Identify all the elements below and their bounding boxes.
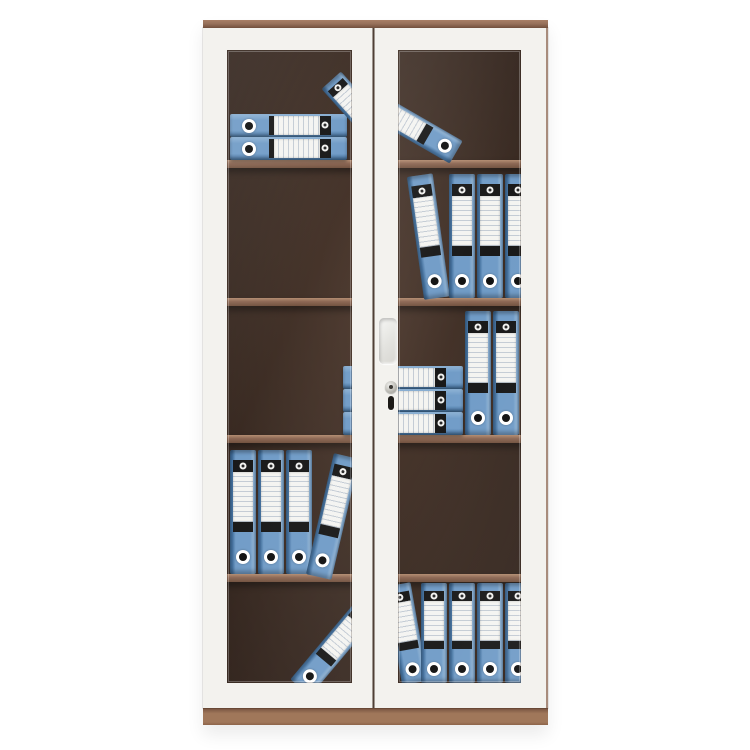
lock-cylinder — [385, 381, 397, 393]
window-frame-line-left — [227, 50, 352, 683]
cabinet-top-trim — [203, 20, 548, 28]
product-photo-stage — [0, 0, 750, 750]
keyhole-slot — [388, 396, 394, 410]
filing-cabinet — [203, 20, 548, 725]
glass-door-left — [203, 28, 373, 708]
cabinet-base-plinth — [203, 708, 548, 725]
door-handle — [379, 318, 397, 364]
cabinet-right-edge-shadow — [546, 28, 548, 708]
door-gap-line — [372, 28, 375, 708]
glass-door-right — [375, 28, 548, 708]
window-frame-line-right — [398, 50, 521, 683]
